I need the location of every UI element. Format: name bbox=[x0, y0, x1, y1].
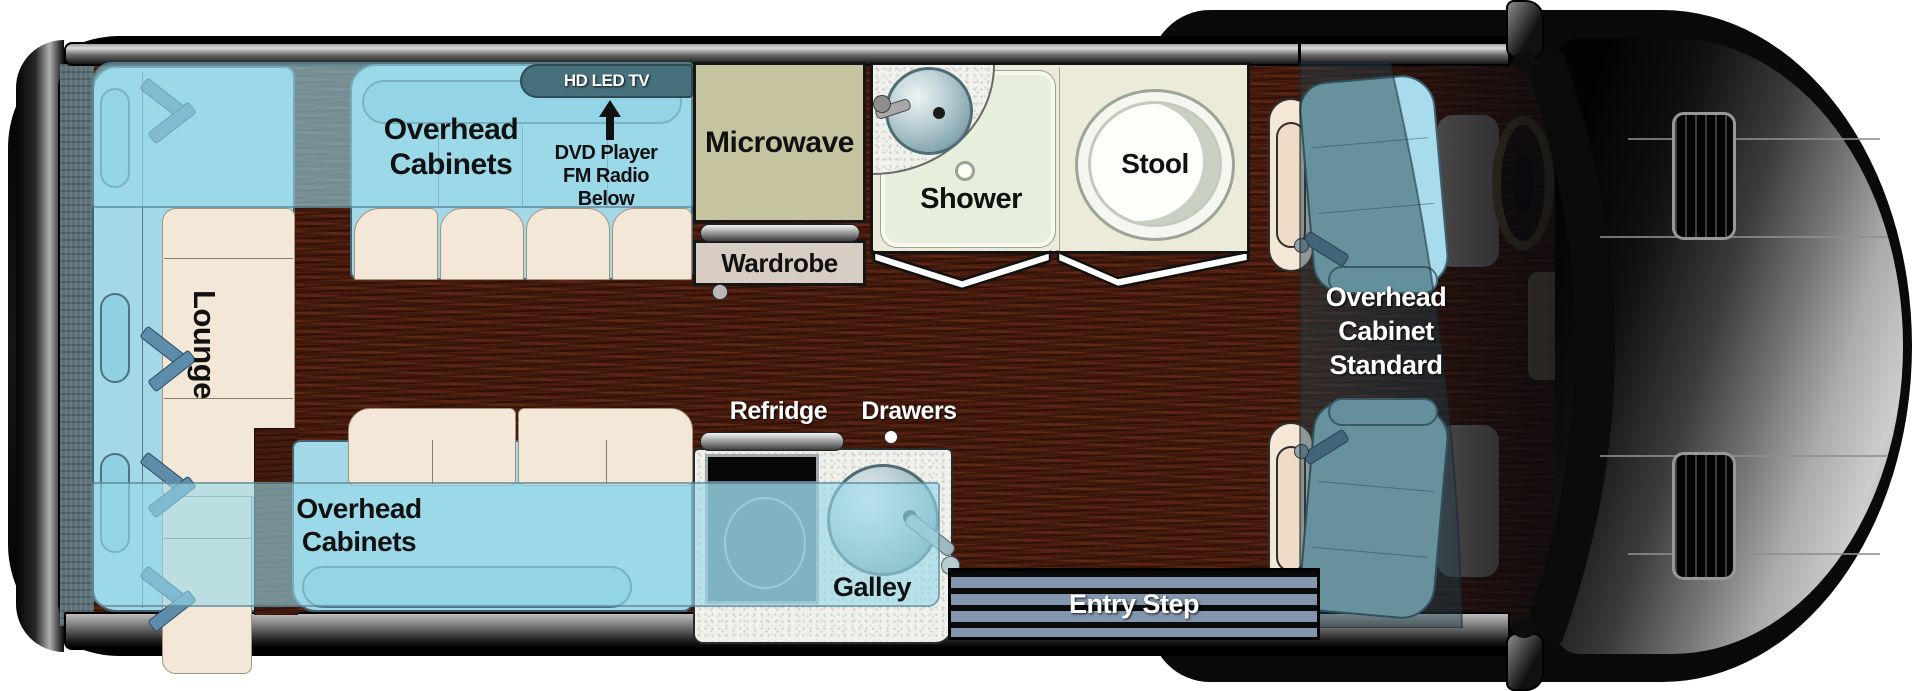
fridge-top-panel bbox=[708, 457, 816, 481]
label-line: Cabinets bbox=[302, 526, 416, 557]
label-line: DVD Player bbox=[555, 142, 658, 164]
bath-faucet-knob bbox=[873, 95, 891, 113]
side-mirror-top bbox=[1506, 0, 1544, 58]
hood-seam bbox=[1628, 553, 1880, 555]
shower-drain bbox=[955, 161, 975, 181]
drawers-label: Drawers bbox=[848, 396, 970, 426]
label-line: Cabinets bbox=[390, 148, 513, 181]
arrow-up-stem bbox=[606, 115, 614, 140]
cab-overhead-cabinet-label: Overhead Cabinet Standard bbox=[1310, 280, 1462, 382]
sofa-cushion bbox=[440, 208, 524, 280]
lounge-armrest bbox=[100, 293, 130, 383]
label-line: Standard bbox=[1329, 350, 1442, 380]
shower-label: Shower bbox=[891, 183, 1051, 215]
rear-doors bbox=[60, 64, 94, 626]
cushion-seam bbox=[432, 440, 433, 484]
windshield-pillar bbox=[1500, 40, 1670, 652]
wardrobe-cabinet: Wardrobe bbox=[693, 240, 866, 286]
overhead-cabinets-top-label: Overhead Cabinets bbox=[370, 112, 532, 182]
sofa-cushion bbox=[354, 208, 438, 280]
galley-label: Galley bbox=[820, 572, 924, 602]
hood-vent-top bbox=[1672, 112, 1736, 240]
floorplan-canvas: Lounge Overhead Cabinets HD LED TV DVD P… bbox=[0, 0, 1920, 691]
label-line: Overhead bbox=[296, 493, 421, 524]
microwave-cabinet: Microwave bbox=[693, 62, 866, 223]
sofa-cushion bbox=[526, 208, 610, 280]
wardrobe-hanger-rod bbox=[700, 224, 860, 242]
lounge-label: Lounge bbox=[186, 290, 222, 399]
refrigerator-label: Refridge bbox=[706, 396, 851, 426]
label-line: FM Radio bbox=[563, 165, 649, 187]
label-line: Cabinet bbox=[1338, 316, 1434, 346]
overhead-cabinets-bottom-label: Overhead Cabinets bbox=[286, 492, 432, 558]
toilet-shape: Stool bbox=[1075, 89, 1235, 241]
toilet-inner: Stool bbox=[1088, 101, 1222, 227]
bathroom-folding-doors bbox=[870, 248, 1252, 298]
overhead-cabinets-bottom bbox=[92, 482, 940, 607]
cushion-seam bbox=[164, 398, 293, 399]
bath-sink-drain bbox=[933, 107, 945, 119]
cushion-seam bbox=[164, 258, 293, 259]
bathroom-divider bbox=[1059, 67, 1060, 251]
wardrobe-knob bbox=[712, 284, 728, 300]
label-line: Below bbox=[578, 188, 634, 210]
drawer-knob bbox=[884, 430, 898, 444]
bathroom: Shower Stool bbox=[870, 62, 1250, 254]
tv-cabinet: HD LED TV bbox=[520, 64, 693, 98]
hood-seam bbox=[1600, 236, 1888, 238]
label-line: Overhead bbox=[1326, 282, 1447, 312]
av-equipment-label: DVD Player FM Radio Below bbox=[530, 142, 682, 211]
entry-step: Entry Step bbox=[948, 568, 1320, 640]
entry-step-label: Entry Step bbox=[951, 571, 1317, 637]
mirror-mount-top bbox=[1512, 52, 1536, 72]
mirror-mount-bottom bbox=[1512, 618, 1536, 638]
label-line: Overhead bbox=[384, 113, 518, 146]
fridge-handle-bar bbox=[700, 432, 844, 451]
hood-seam bbox=[1628, 138, 1880, 140]
hood-seam bbox=[1600, 455, 1888, 457]
hood-vent-bottom bbox=[1672, 452, 1736, 580]
cushion-seam bbox=[606, 440, 607, 484]
sofa-cushion bbox=[612, 208, 692, 280]
van-rear-bumper bbox=[16, 40, 64, 652]
side-mirror-bottom bbox=[1506, 633, 1544, 691]
